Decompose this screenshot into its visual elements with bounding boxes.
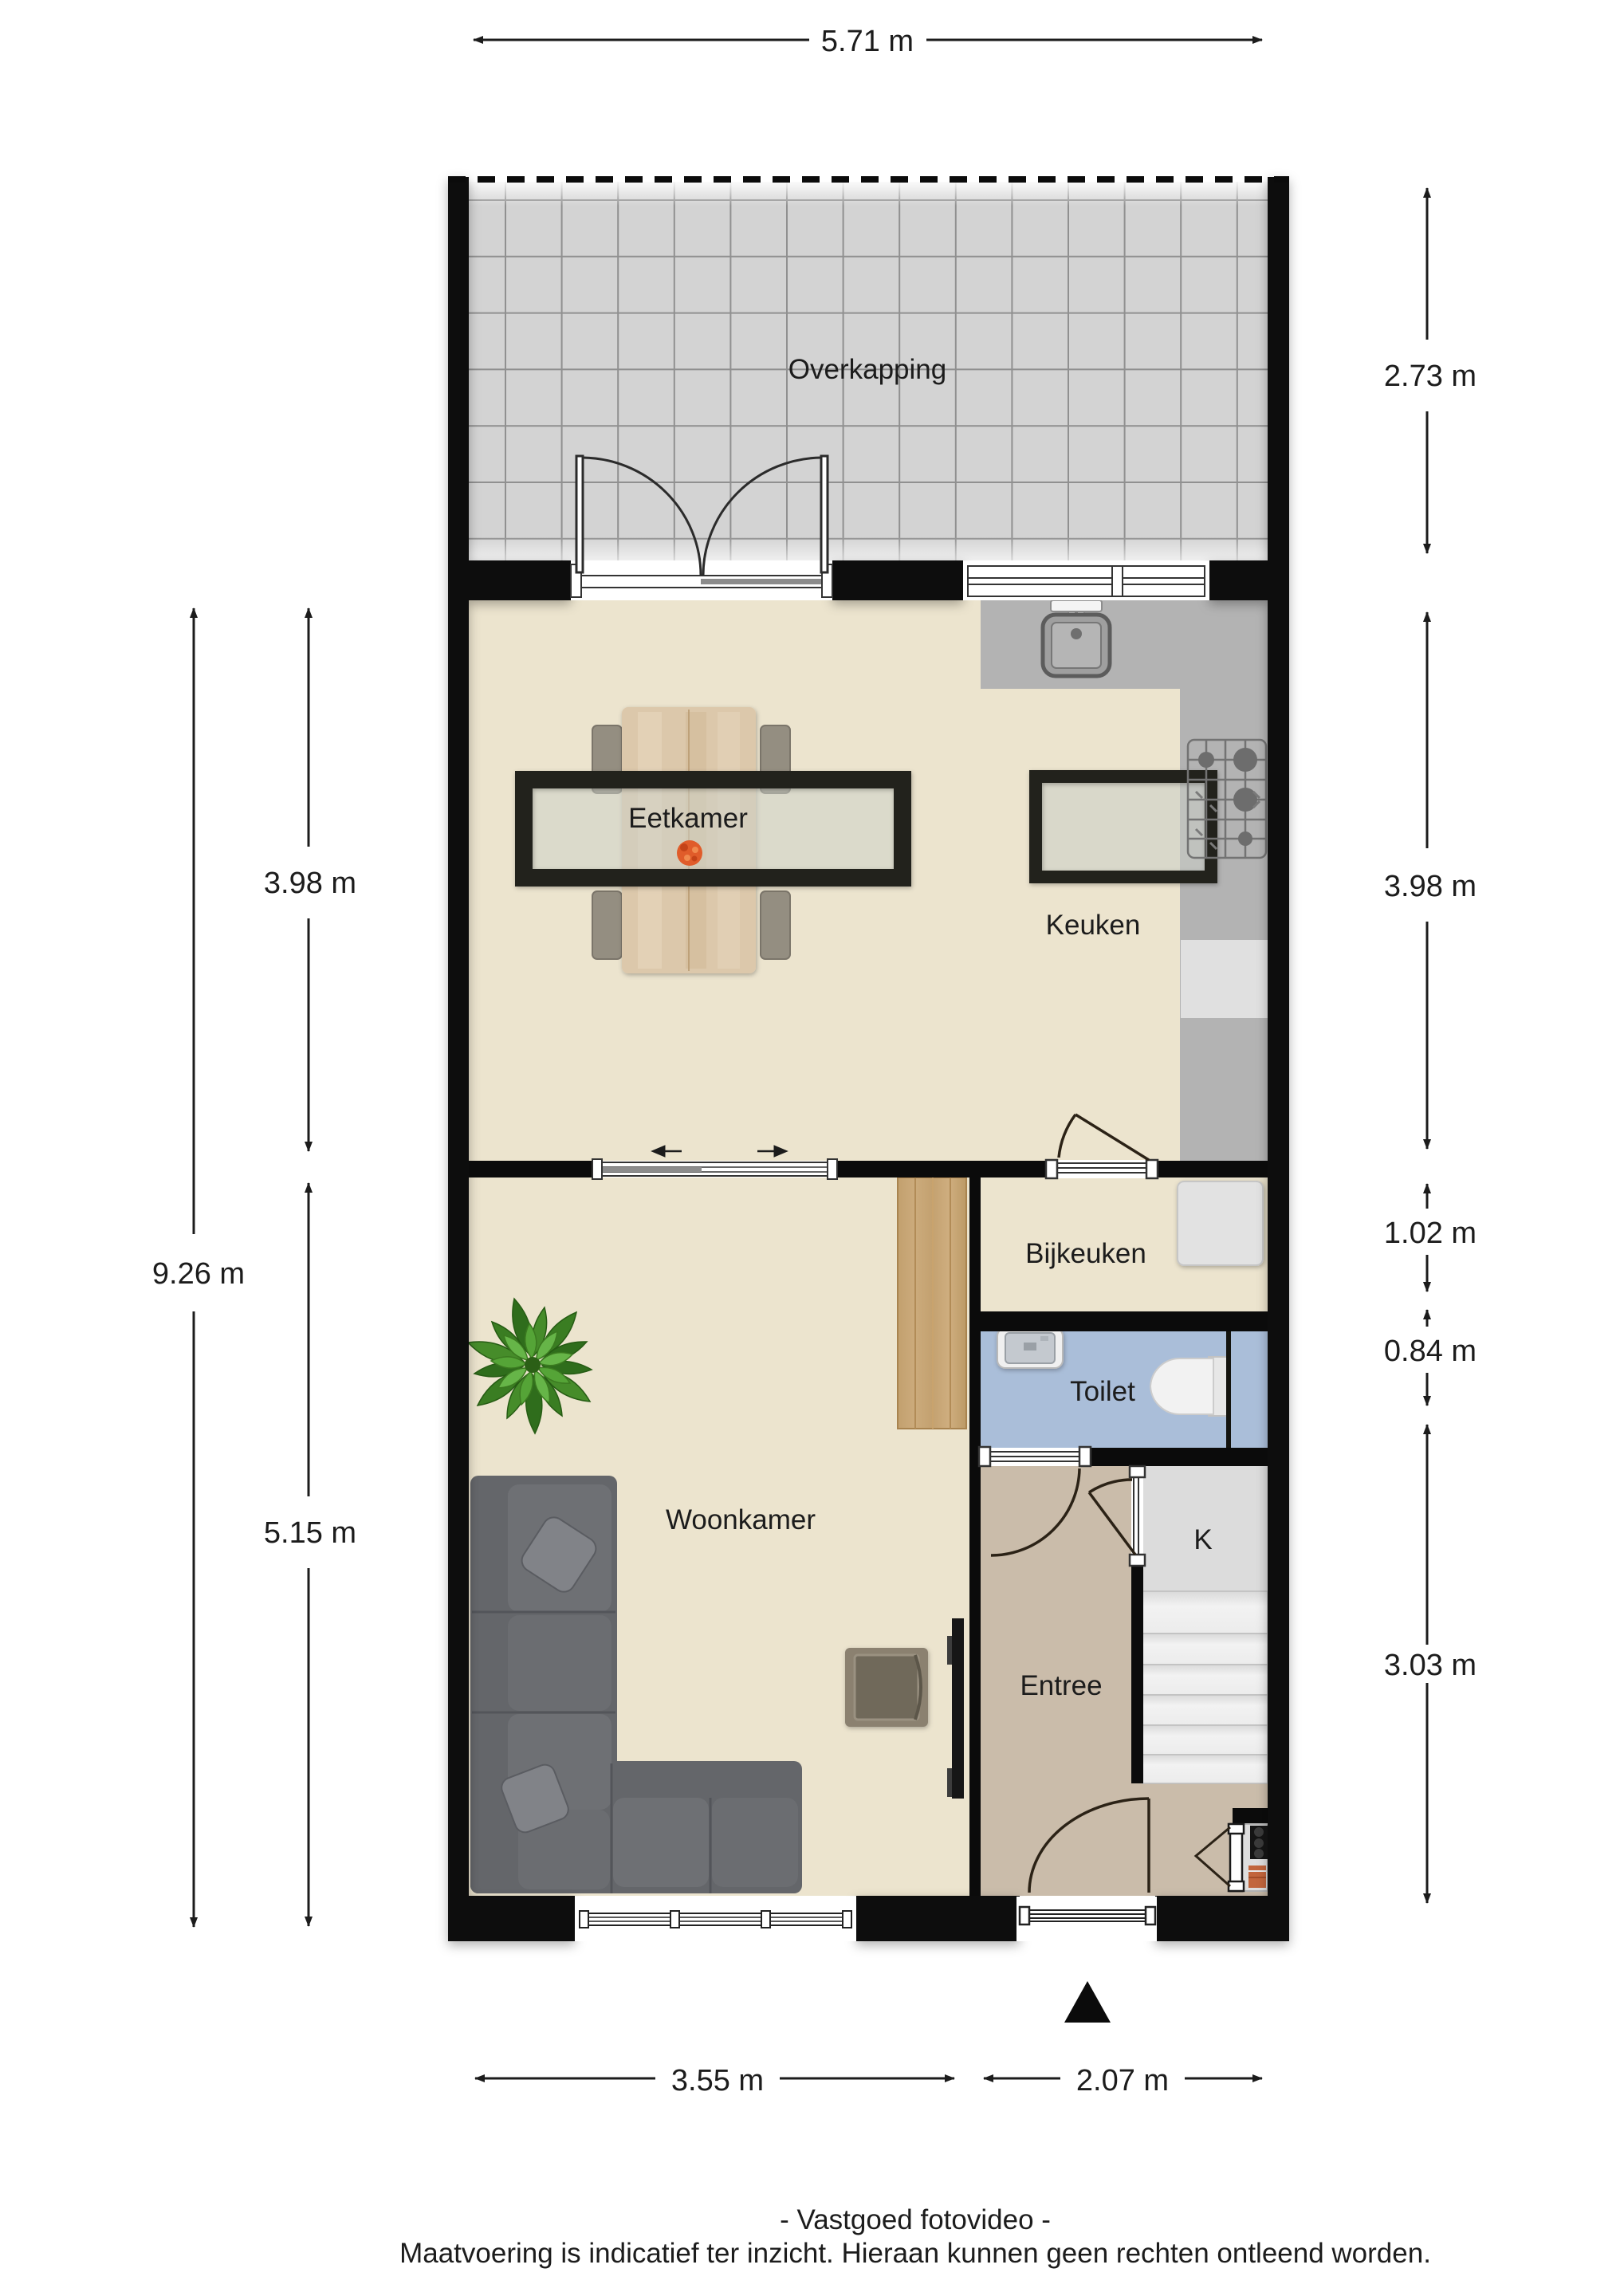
svg-text:3.98 m: 3.98 m [1384, 870, 1477, 903]
svg-text:- Vastgoed fotovideo -: - Vastgoed fotovideo - [780, 2204, 1051, 2235]
svg-text:2.73 m: 2.73 m [1384, 360, 1477, 393]
svg-text:5.71 m: 5.71 m [821, 25, 914, 58]
svg-text:3.03 m: 3.03 m [1384, 1649, 1477, 1682]
svg-text:2.07 m: 2.07 m [1076, 2064, 1169, 2097]
svg-text:3.55 m: 3.55 m [671, 2064, 764, 2097]
svg-text:Overkapping: Overkapping [788, 354, 946, 385]
svg-text:Bijkeuken: Bijkeuken [1025, 1238, 1146, 1269]
svg-text:1.02 m: 1.02 m [1384, 1217, 1477, 1250]
svg-text:Woonkamer: Woonkamer [666, 1504, 816, 1535]
svg-text:K: K [1193, 1524, 1212, 1555]
svg-text:Keuken: Keuken [1046, 910, 1141, 941]
svg-text:5.15 m: 5.15 m [264, 1516, 356, 1550]
svg-text:Eetkamer: Eetkamer [628, 803, 748, 834]
svg-text:0.84 m: 0.84 m [1384, 1335, 1477, 1368]
svg-text:9.26 m: 9.26 m [152, 1257, 245, 1291]
svg-text:3.98 m: 3.98 m [264, 867, 356, 900]
svg-text:Maatvoering is indicatief ter: Maatvoering is indicatief ter inzicht. H… [399, 2238, 1431, 2269]
svg-text:Toilet: Toilet [1070, 1376, 1135, 1407]
svg-text:Entree: Entree [1020, 1670, 1102, 1701]
